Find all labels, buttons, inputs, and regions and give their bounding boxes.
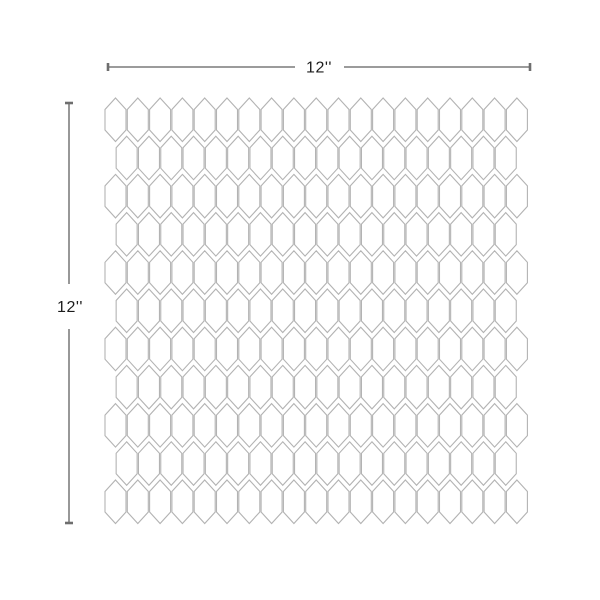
picket-tile [373,98,394,142]
picket-tile [417,327,438,371]
picket-tile [473,365,494,409]
picket-tile [339,213,360,257]
diagram-canvas: 12'' 12'' [0,0,600,600]
picket-tile [172,404,193,448]
picket-tile [428,136,449,180]
picket-tile [395,480,416,524]
picket-tile [328,480,349,524]
picket-tile [440,327,461,371]
picket-tile [295,442,316,486]
picket-tile [250,136,271,180]
picket-tile [295,213,316,257]
picket-tile [261,251,282,294]
picket-tile [395,98,416,142]
picket-tile [105,251,126,294]
picket-tile [183,365,204,409]
picket-tile [462,404,483,448]
product-dimension-diagram: 12'' 12'' [0,0,600,600]
picket-tile [473,213,494,257]
picket-tile [172,98,193,142]
picket-tile [328,251,349,294]
picket-tile [328,174,349,218]
picket-tile [506,327,527,371]
picket-tile [205,442,226,486]
picket-tile [306,480,327,524]
picket-tile [194,480,215,524]
picket-tile [205,136,226,180]
picket-tile [239,404,260,448]
picket-tile [462,327,483,371]
picket-tile [283,98,304,142]
picket-tile [306,327,327,371]
picket-tile [440,251,461,294]
picket-tile [462,174,483,218]
picket-tile [205,365,226,409]
picket-tile [384,289,405,333]
picket-tile [495,213,516,257]
picket-tile [205,289,226,333]
picket-tile [150,174,171,218]
picket-tile [428,365,449,409]
picket-tile [373,174,394,218]
picket-tile [105,480,126,524]
picket-tile [328,327,349,371]
picket-tile [373,404,394,448]
picket-tile [228,213,249,257]
picket-tile [451,365,472,409]
picket-tile [138,289,159,333]
picket-tile [440,404,461,448]
picket-tile [350,327,371,371]
picket-tile [506,404,527,448]
picket-tile [384,442,405,486]
picket-tile [250,213,271,257]
picket-tile [506,174,527,218]
vertical-dimension-label: 12'' [57,299,83,316]
picket-tile [373,327,394,371]
picket-tile [406,442,427,486]
picket-tile [417,174,438,218]
picket-tile [495,365,516,409]
picket-tile [395,174,416,218]
picket-tile [384,136,405,180]
picket-tile [317,213,338,257]
picket-tile [350,404,371,448]
picket-tile [228,136,249,180]
picket-tile [506,251,527,294]
picket-tile [172,327,193,371]
picket-tile [272,136,293,180]
picket-tile [183,213,204,257]
picket-tile [350,251,371,294]
picket-tile [473,442,494,486]
picket-tile [150,251,171,294]
picket-tile [373,480,394,524]
picket-tile [194,98,215,142]
picket-tile [150,98,171,142]
picket-tile [172,480,193,524]
picket-tile [272,213,293,257]
picket-tile [127,404,148,448]
picket-tile [217,327,238,371]
picket-tile [462,98,483,142]
picket-tile [272,289,293,333]
picket-tile [295,289,316,333]
picket-tile [406,289,427,333]
picket-tile [194,174,215,218]
picket-tile [339,365,360,409]
picket-tile [250,442,271,486]
picket-tile [194,327,215,371]
horizontal-dimension-label: 12'' [306,60,332,77]
picket-tile [440,98,461,142]
picket-tile [127,480,148,524]
picket-tile [194,404,215,448]
picket-tile [261,404,282,448]
picket-tile [339,136,360,180]
picket-tile [217,98,238,142]
picket-tile [217,174,238,218]
picket-tile [228,442,249,486]
picket-tile [150,480,171,524]
picket-tile [116,365,137,409]
picket-tile [239,174,260,218]
picket-tile [306,98,327,142]
picket-tile [261,174,282,218]
picket-tile [127,327,148,371]
picket-tile [138,213,159,257]
picket-tile [150,327,171,371]
picket-tile [295,136,316,180]
picket-tile [417,251,438,294]
picket-tile [417,98,438,142]
picket-tile [127,98,148,142]
picket-tile [161,213,182,257]
picket-tile [417,480,438,524]
picket-tile [428,213,449,257]
picket-tile [484,98,505,142]
picket-tile [440,480,461,524]
picket-tile [428,442,449,486]
picket-tile [250,289,271,333]
picket-tile [440,174,461,218]
picket-tile [306,404,327,448]
picket-tile [283,480,304,524]
picket-tile [105,98,126,142]
picket-tile [361,365,382,409]
picket-tile [116,136,137,180]
picket-tile [261,98,282,142]
picket-tile [406,136,427,180]
picket-tile [116,442,137,486]
picket-tile [484,251,505,294]
picket-tile [239,251,260,294]
picket-tile [328,98,349,142]
picket-tile [172,174,193,218]
picket-tile [194,251,215,294]
picket-tile [339,442,360,486]
picket-tile [205,213,226,257]
picket-tile [283,251,304,294]
picket-tile [317,442,338,486]
picket-tile [105,404,126,448]
picket-tile [283,327,304,371]
picket-tile [272,442,293,486]
picket-tile [417,404,438,448]
picket-tile [451,289,472,333]
picket-tile [350,98,371,142]
picket-tile [317,365,338,409]
picket-tile [484,327,505,371]
picket-tile [261,327,282,371]
picket-tile [127,251,148,294]
picket-tile [239,327,260,371]
picket-tile [306,174,327,218]
picket-tile [428,289,449,333]
picket-tile [495,442,516,486]
picket-tile [116,213,137,257]
picket-tile [506,480,527,524]
picket-tile [506,98,527,142]
picket-tile [484,480,505,524]
picket-tile [228,365,249,409]
picket-tile [406,365,427,409]
picket-tile [462,480,483,524]
picket-tile [484,174,505,218]
picket-tile [116,289,137,333]
picket-tile [339,289,360,333]
picket-tile [217,251,238,294]
picket-tile [261,480,282,524]
picket-tile [105,327,126,371]
picket-tile [217,404,238,448]
picket-tile [328,404,349,448]
picket-tile [350,480,371,524]
picket-tile [484,404,505,448]
picket-tile [306,251,327,294]
picket-tile [350,174,371,218]
picket-tile [451,442,472,486]
picket-tile [373,251,394,294]
picket-tile [127,174,148,218]
picket-tile [384,365,405,409]
picket-tile [138,365,159,409]
picket-tile [161,365,182,409]
picket-tile [395,404,416,448]
picket-tile [150,404,171,448]
picket-tile [451,213,472,257]
picket-tile [495,289,516,333]
picket-tile [172,251,193,294]
picket-tile [138,136,159,180]
picket-tile [105,174,126,218]
picket-tile [272,365,293,409]
picket-tile [495,136,516,180]
picket-tile [217,480,238,524]
picket-tile [361,442,382,486]
picket-tile [451,136,472,180]
picket-tile [161,442,182,486]
picket-tile [361,289,382,333]
picket-tile [239,480,260,524]
picket-tile [317,289,338,333]
picket-tile [295,365,316,409]
picket-tile [317,136,338,180]
picket-tile [361,136,382,180]
picket-tile [384,213,405,257]
picket-tile [183,136,204,180]
picket-tile [395,327,416,371]
picket-tile [161,289,182,333]
picket-tile [283,174,304,218]
picket-tile [462,251,483,294]
picket-tile [283,404,304,448]
picket-tile [395,251,416,294]
picket-tile [473,289,494,333]
tile-mosaic-pattern [105,98,527,524]
picket-tile [138,442,159,486]
picket-tile [161,136,182,180]
picket-tile [183,289,204,333]
picket-tile [239,98,260,142]
picket-tile [183,442,204,486]
picket-tile [473,136,494,180]
picket-tile [250,365,271,409]
picket-tile [406,213,427,257]
picket-tile [228,289,249,333]
picket-tile [361,213,382,257]
